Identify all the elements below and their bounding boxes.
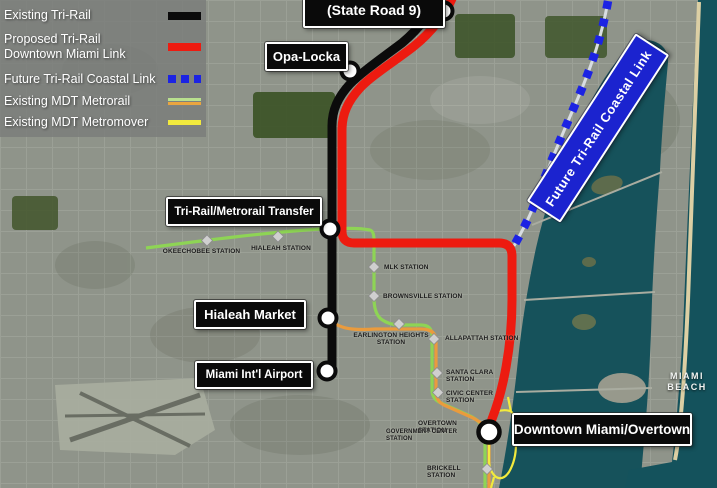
legend-row-existing-tri-rail: Existing Tri-Rail bbox=[4, 4, 201, 27]
blue-dashed-swatch bbox=[168, 75, 201, 83]
station-label-brownsville: BROWNSVILLE STATION bbox=[383, 293, 465, 300]
legend-label: Proposed Tri-Rail bbox=[4, 32, 164, 47]
legend-label: Existing MDT Metrorail bbox=[4, 94, 164, 109]
legend-row-metrorail: Existing MDT Metrorail bbox=[4, 91, 201, 112]
station-label-government-center: GOVERNMENT CENTER STATION bbox=[386, 429, 484, 443]
station-label-hialeah: HIALEAH STATION bbox=[245, 245, 317, 252]
legend-label: Existing MDT Metromover bbox=[4, 115, 164, 130]
station-label-earlington-heights: EARLINGTON HEIGHTS STATION bbox=[352, 332, 430, 347]
legend-row-proposed-link: Proposed Tri-Rail Downtown Miami Link bbox=[4, 27, 201, 67]
yellow-line-swatch bbox=[168, 120, 201, 125]
legend-row-metromover: Existing MDT Metromover bbox=[4, 111, 201, 133]
legend-row-coastal-link: Future Tri-Rail Coastal Link bbox=[4, 68, 201, 91]
legend-label: Future Tri-Rail Coastal Link bbox=[4, 72, 164, 87]
callout-opa-locka: Opa-Locka bbox=[265, 42, 348, 71]
green-orange-swatch bbox=[168, 98, 201, 105]
area-label-miami-beach: MIAMI BEACH bbox=[662, 371, 712, 394]
station-label-mlk: MLK STATION bbox=[384, 264, 436, 271]
callout-hialeah-market: Hialeah Market bbox=[194, 300, 306, 329]
callout-miami-intl-airport: Miami Int'l Airport bbox=[195, 361, 313, 389]
station-label-santa-clara: SANTA CLARA STATION bbox=[446, 369, 518, 384]
station-label-civic-center: CIVIC CENTER STATION bbox=[446, 390, 518, 405]
black-line-swatch bbox=[168, 12, 201, 20]
legend-panel: Existing Tri-Rail Proposed Tri-Rail Down… bbox=[0, 0, 206, 137]
callout-tri-rail-metrorail-transfer: Tri-Rail/Metrorail Transfer bbox=[166, 197, 322, 226]
station-label-okeechobee: OKEECHOBEE STATION bbox=[159, 248, 244, 255]
airport-area bbox=[55, 378, 215, 455]
legend-label: Downtown Miami Link bbox=[4, 47, 164, 62]
red-line-swatch bbox=[168, 43, 201, 51]
station-label-allapattah: ALLAPATTAH STATION bbox=[445, 335, 521, 342]
callout-downtown-miami-overtown: Downtown Miami/Overtown bbox=[512, 413, 692, 446]
station-label-brickell: BRICKELL STATION bbox=[427, 465, 487, 480]
legend-label: Existing Tri-Rail bbox=[4, 8, 164, 23]
transit-map: Existing Tri-Rail Proposed Tri-Rail Down… bbox=[0, 0, 717, 488]
callout-state-road-9: (State Road 9) bbox=[303, 0, 445, 28]
